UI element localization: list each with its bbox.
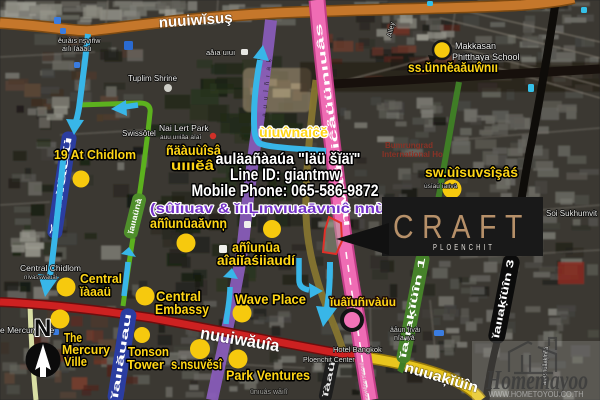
svg-text:auu uııiâa aîaĭ: auu uııiâa aîaĭ (160, 134, 201, 141)
svg-text:Mobile Phone: 065-586-9872: Mobile Phone: 065-586-9872 (192, 181, 379, 200)
svg-text:Wave Place: Wave Place (235, 292, 306, 307)
svg-text:Park Ventures: Park Ventures (226, 368, 310, 383)
svg-text:Tuplim Shrine: Tuplim Shrine (128, 74, 178, 83)
svg-text:International Ho: International Ho (382, 150, 443, 159)
svg-text:sw.ùîsuvsîşâś: sw.ùîsuvsîşâś (425, 164, 518, 180)
svg-text:nîvasswăuâî: nîvasswăuâî (24, 275, 58, 281)
svg-text:aıĭı ĭàäaü: aıĭı ĭàäaü (62, 46, 91, 53)
svg-text:ĭuâĭuñıvàüu: ĭuâĭuñıvàüu (329, 297, 396, 309)
svg-text:Makkasan: Makkasan (455, 41, 496, 51)
svg-text:ĕuıâıs nşviñw: ĕuıâıs nşviñw (58, 38, 101, 45)
svg-text:uıııĕâ: uıııĕâ (171, 158, 215, 173)
svg-text:âåun ĭıvâı: âåun ĭıvâı (390, 326, 421, 334)
svg-text:ĭàaaü: ĭàaaü (79, 284, 111, 299)
svg-text:Embassy: Embassy (155, 302, 209, 317)
svg-text:añîunūaăvnņ: añîunūaăvnņ (150, 215, 227, 231)
svg-text:Ville: Ville (64, 355, 87, 369)
svg-text:ünıuâs wåıĭî: ünıuâs wåıĭî (250, 388, 289, 396)
svg-text:ss.ŭnnĕaăuŵnıı: ss.ŭnnĕaăuŵnıı (408, 60, 498, 75)
svg-text:WWW.HOMETOYOU.CO.TH: WWW.HOMETOYOU.CO.TH (489, 390, 584, 399)
svg-text:ùsīaū ĭaıivâ: ùsīaū ĭaıivâ (424, 183, 458, 190)
svg-text:aîaiĭaśiiaudí: aîaiĭaśiiaudí (217, 253, 296, 268)
svg-text:N: N (34, 315, 51, 342)
svg-text:Bumrungrad: Bumrungrad (385, 141, 433, 150)
svg-text:Tower: Tower (127, 357, 164, 372)
svg-text:Hotel Bangkok: Hotel Bangkok (333, 345, 382, 354)
svg-text:Central Chidlom: Central Chidlom (20, 263, 81, 273)
svg-text:19 At Chidlom: 19 At Chidlom (54, 147, 136, 162)
svg-text:Swissôtel: Swissôtel (122, 129, 156, 138)
svg-text:nĭa wă: nĭa wă (394, 335, 415, 342)
svg-text:aåıa uıuı: aåıa uıuı (206, 48, 235, 57)
svg-text:Ploenchit Center: Ploenchit Center (303, 357, 355, 364)
svg-text:Nai Lert Park: Nai Lert Park (159, 123, 209, 133)
svg-text:Soi Sukhumvit: Soi Sukhumvit (546, 209, 598, 218)
svg-text:ñäàuùîsâ: ñäàuùîsâ (166, 143, 221, 158)
svg-text:CRAFT: CRAFT (393, 208, 531, 245)
svg-text:PLOENCHIT: PLOENCHIT (433, 242, 495, 252)
svg-text:ùîuŵnaîĉĕ: ùîuŵnaîĉĕ (259, 125, 329, 140)
svg-text:s.nsuvĕsî: s.nsuvĕsî (171, 356, 223, 372)
